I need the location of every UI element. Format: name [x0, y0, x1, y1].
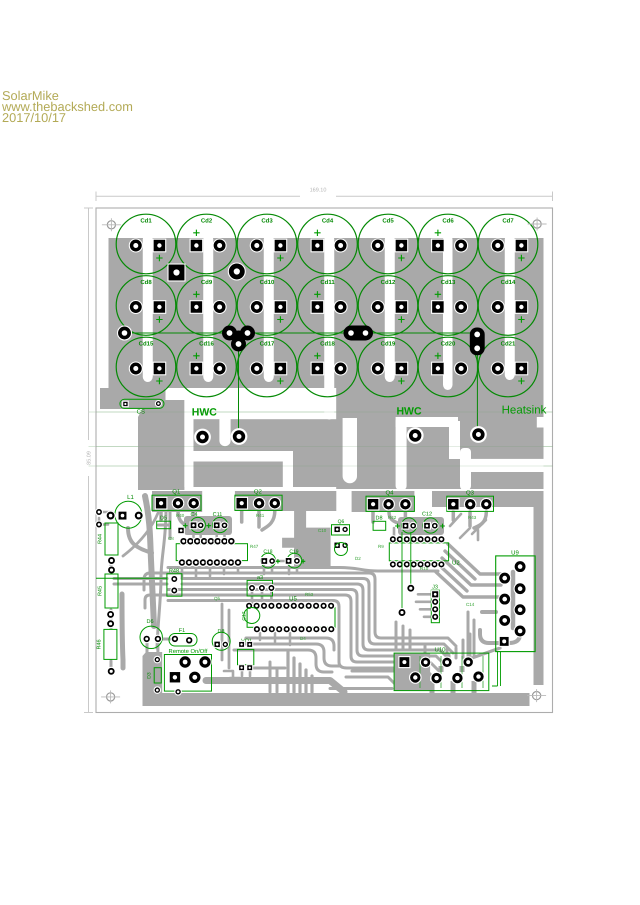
svg-text:Q3: Q3 — [466, 490, 475, 497]
svg-text:R42: R42 — [388, 515, 397, 520]
svg-text:U2: U2 — [452, 560, 460, 567]
svg-text:Q6: Q6 — [338, 519, 345, 525]
svg-text:C19: C19 — [289, 549, 298, 555]
svg-text:Cd13: Cd13 — [441, 279, 456, 286]
svg-text:Cd16: Cd16 — [199, 341, 214, 348]
svg-text:R46: R46 — [97, 639, 103, 649]
svg-text:Cd1: Cd1 — [140, 218, 152, 225]
svg-text:a3: a3 — [257, 575, 263, 581]
svg-text:D3: D3 — [147, 672, 153, 679]
svg-text:U5: U5 — [289, 596, 297, 603]
svg-text:169.10: 169.10 — [310, 188, 327, 194]
svg-text:R53: R53 — [305, 592, 314, 597]
svg-text:R48: R48 — [169, 569, 179, 575]
svg-text:Cd5: Cd5 — [382, 218, 394, 225]
svg-text:Heatsink: Heatsink — [502, 405, 547, 417]
svg-text:C18: C18 — [263, 549, 272, 555]
svg-text:C14: C14 — [466, 602, 475, 607]
svg-text:85.09: 85.09 — [87, 451, 93, 465]
svg-text:Cd11: Cd11 — [320, 279, 335, 286]
svg-text:D8: D8 — [217, 629, 224, 635]
svg-text:U10: U10 — [434, 647, 446, 654]
svg-text:R44: R44 — [98, 534, 104, 544]
svg-text:Remote On/Off: Remote On/Off — [169, 648, 208, 655]
svg-text:F1: F1 — [179, 628, 185, 634]
svg-text:Q4: Q4 — [385, 490, 394, 497]
svg-text:D5: D5 — [160, 516, 167, 522]
svg-text:C4: C4 — [190, 512, 197, 518]
svg-text:C11: C11 — [213, 512, 223, 518]
svg-text:Cd9: Cd9 — [201, 279, 213, 286]
svg-text:D6: D6 — [146, 619, 153, 625]
svg-text:Q5: Q5 — [214, 596, 221, 601]
svg-text:Cd20: Cd20 — [441, 341, 456, 348]
svg-text:D2: D2 — [355, 556, 361, 561]
svg-text:Cd10: Cd10 — [260, 279, 275, 286]
svg-text:Cd14: Cd14 — [501, 279, 516, 286]
svg-text:R43: R43 — [468, 515, 477, 520]
svg-text:HWC: HWC — [192, 407, 217, 419]
svg-text:C8: C8 — [168, 536, 174, 541]
svg-text:Cd17: Cd17 — [260, 341, 275, 348]
svg-text:R41: R41 — [256, 513, 265, 518]
svg-text:C10: C10 — [318, 528, 327, 533]
svg-text:C12: C12 — [422, 512, 432, 518]
svg-text:Q1: Q1 — [172, 489, 181, 496]
svg-text:R45: R45 — [98, 586, 104, 596]
svg-text:Cd7: Cd7 — [502, 218, 514, 225]
svg-text:Q2: Q2 — [254, 489, 263, 496]
svg-text:Cd3: Cd3 — [261, 218, 273, 225]
svg-text:R40: R40 — [176, 513, 185, 518]
svg-text:Cd19: Cd19 — [381, 341, 396, 348]
svg-text:Cd12: Cd12 — [381, 279, 396, 286]
svg-text:Cd18: Cd18 — [320, 341, 335, 348]
svg-text:Cd15: Cd15 — [139, 341, 154, 348]
svg-text:2017/10/17: 2017/10/17 — [2, 110, 66, 125]
svg-text:R10: R10 — [420, 566, 429, 571]
svg-text:Cd2: Cd2 — [201, 218, 213, 225]
svg-text:Cd4: Cd4 — [322, 218, 334, 225]
svg-text:D8: D8 — [375, 516, 382, 522]
svg-text:HWC: HWC — [396, 406, 421, 418]
svg-text:Cd8: Cd8 — [140, 279, 152, 286]
svg-text:Cd21: Cd21 — [501, 341, 516, 348]
svg-text:R47: R47 — [250, 544, 259, 549]
svg-text:J3: J3 — [432, 585, 438, 591]
svg-text:D4: D4 — [300, 636, 306, 641]
svg-text:R9: R9 — [378, 544, 384, 549]
svg-text:C17: C17 — [242, 611, 248, 620]
svg-text:L1: L1 — [127, 494, 134, 501]
svg-text:Cd6: Cd6 — [442, 218, 454, 225]
svg-text:U9: U9 — [511, 550, 519, 557]
